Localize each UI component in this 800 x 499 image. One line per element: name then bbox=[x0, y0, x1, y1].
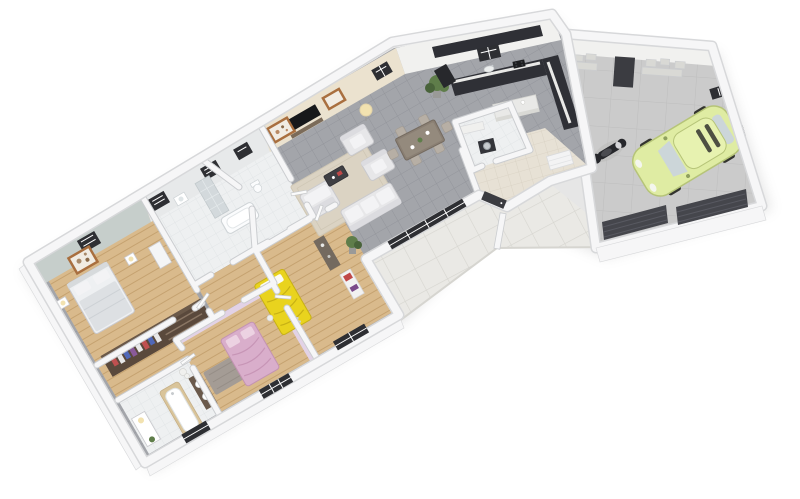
garage-back-door bbox=[613, 56, 635, 87]
house-floorplan-3d-render bbox=[0, 0, 800, 499]
floorplan-canvas bbox=[0, 0, 800, 499]
garage bbox=[566, 34, 766, 262]
